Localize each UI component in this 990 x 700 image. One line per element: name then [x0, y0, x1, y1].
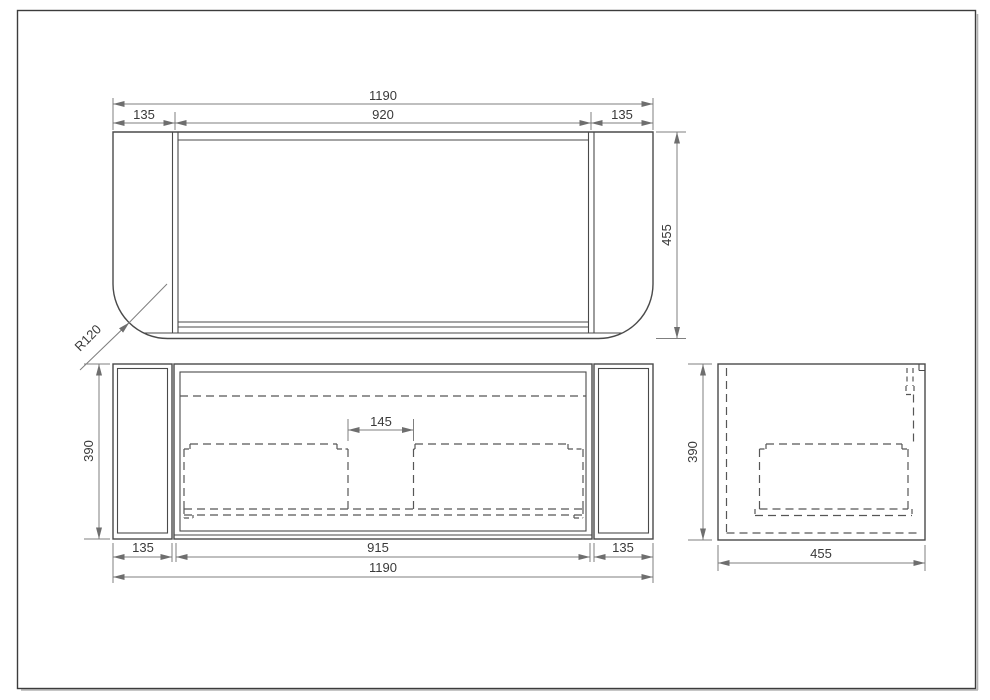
front-view: 390 145 135 915 135 1190 [81, 364, 653, 583]
side-outline [718, 364, 925, 540]
side-view: 390 455 [685, 364, 925, 571]
front-right-panel [594, 364, 653, 539]
top-view-internal-lines [144, 132, 622, 333]
front-right-panel-inner [599, 369, 649, 534]
front-hidden-details [184, 444, 583, 518]
front-view-dimensions: 390 145 135 915 135 1190 [81, 364, 653, 583]
dim-label-overall-width-top: 1190 [369, 88, 397, 103]
dim-label-height-side: 390 [685, 441, 700, 463]
sheet-frame [18, 11, 979, 691]
drawing-sheet: 1190 920 135 135 455 R120 390 1 [0, 0, 990, 700]
top-view: 1190 920 135 135 455 R120 [72, 88, 686, 370]
dim-label-left-panel-top: 135 [133, 107, 155, 122]
side-hidden-lines [727, 368, 918, 533]
dim-label-opening-width: 915 [367, 540, 389, 555]
dim-label-corner-radius: R120 [72, 322, 105, 355]
front-carcass [174, 364, 592, 539]
front-left-panel [113, 364, 172, 539]
frame-border [18, 11, 976, 689]
dim-label-depth-top: 455 [659, 224, 674, 246]
dim-label-overall-width-front: 1190 [369, 560, 397, 575]
dim-label-left-panel-front: 135 [132, 540, 154, 555]
dim-label-depth-side: 455 [810, 546, 832, 561]
extension-lines [113, 98, 686, 339]
dim-label-right-panel-top: 135 [611, 107, 633, 122]
top-view-outline [113, 132, 653, 339]
front-left-panel-inner [118, 369, 168, 534]
dim-label-height-front: 390 [81, 440, 96, 462]
side-hidden-details [755, 368, 914, 516]
dim-label-carcass-width: 920 [372, 107, 394, 122]
cad-drawing-canvas: 1190 920 135 135 455 R120 390 1 [0, 0, 990, 700]
side-corner-rebate [919, 364, 925, 371]
dim-label-drawer-gap: 145 [370, 414, 392, 429]
dim-label-right-panel-front: 135 [612, 540, 634, 555]
frame-shadow [21, 14, 978, 690]
radius-leader-tail [129, 284, 167, 323]
